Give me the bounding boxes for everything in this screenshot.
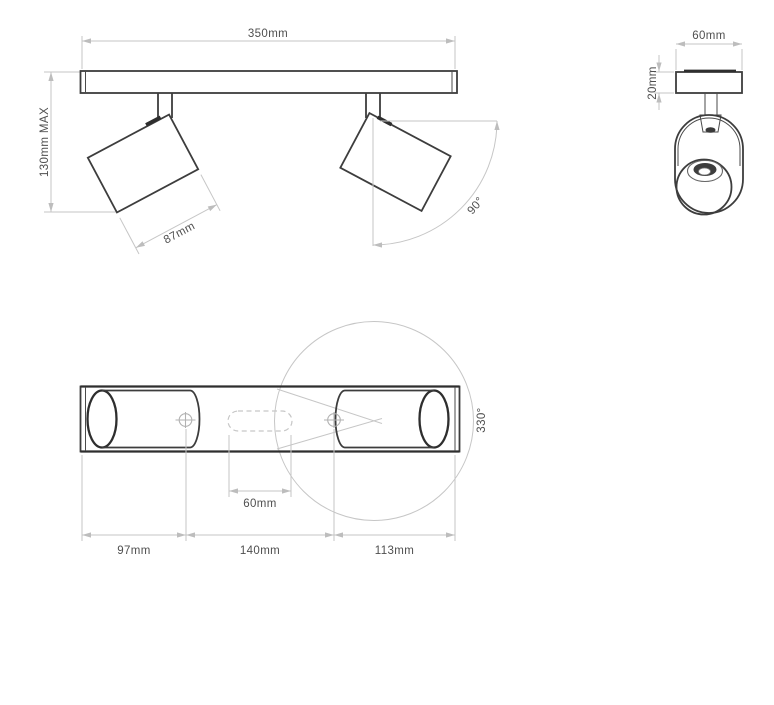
dim-bracket-thickness: 20mm <box>647 55 674 110</box>
dim-bar-width: 350mm <box>82 28 455 69</box>
technical-drawing-page: 350mm 130mm MAX <box>0 0 774 705</box>
rotation-angle-label: 330° <box>476 407 488 432</box>
technical-drawing: 350mm 130mm MAX <box>0 0 774 705</box>
right-spot-body-plan <box>336 391 449 448</box>
right-spot-head <box>340 113 450 211</box>
side-view: 60mm 20mm <box>647 30 743 215</box>
bottom-plan-view: 330° <box>81 322 489 558</box>
max-height-label: 130mm MAX <box>39 107 51 177</box>
spot-body-inner-line <box>678 118 740 166</box>
left-spot-head <box>88 115 198 213</box>
bracket-thickness-label: 20mm <box>647 66 659 100</box>
bracket-width-label: 60mm <box>692 30 726 42</box>
slot-width-label: 60mm <box>243 498 277 510</box>
dim-slot-width: 60mm <box>229 435 291 510</box>
led-center <box>699 168 711 175</box>
front-view: 350mm 130mm MAX <box>39 28 497 254</box>
fixing-screw-right <box>324 412 344 428</box>
tilt-angle-label: 90° <box>465 195 486 217</box>
mounting-bracket <box>676 72 742 93</box>
right-section-label: 113mm <box>375 545 415 557</box>
side-stem <box>705 93 717 116</box>
left-section-label: 97mm <box>117 545 151 557</box>
left-spot-body-plan <box>88 391 200 448</box>
center-section-label: 140mm <box>240 545 280 557</box>
bar-plan-outline <box>81 387 460 452</box>
hinge-pivot <box>706 127 716 133</box>
dim-rotation: 330° <box>275 322 489 521</box>
dim-head-length: 87mm <box>120 175 220 254</box>
dim-tilt-angle: 90° <box>373 118 497 246</box>
bar-width-label: 350mm <box>248 28 288 40</box>
cable-entry-slot <box>228 411 292 431</box>
ceiling-bar <box>81 71 458 93</box>
dim-bracket-width: 60mm <box>676 30 742 70</box>
fixing-screw-left <box>176 412 196 428</box>
